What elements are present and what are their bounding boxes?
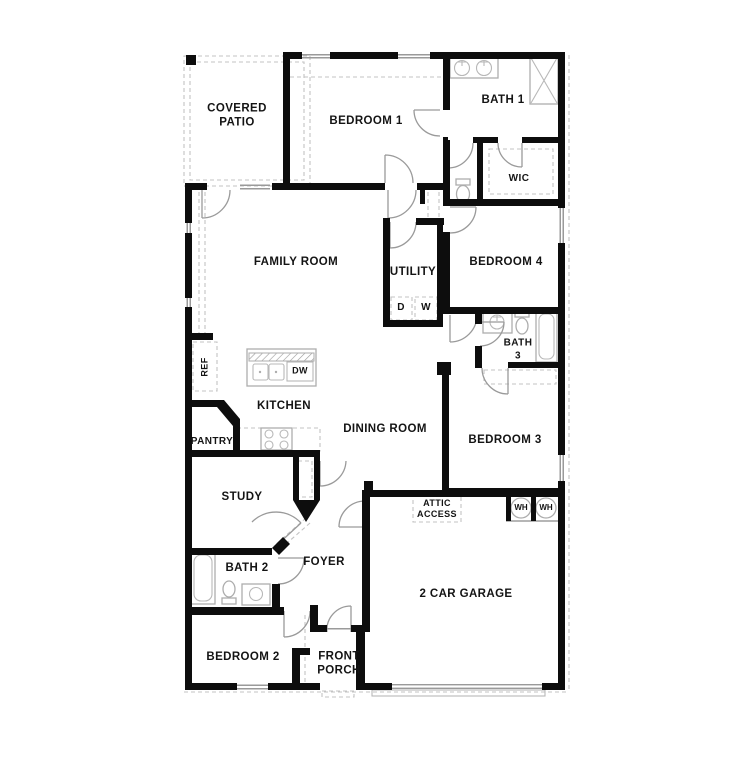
label-dishwasher: DW [292, 365, 308, 376]
label-bath-2: BATH 2 [225, 561, 268, 575]
label-study: STUDY [222, 490, 263, 504]
label-dining-room: DINING ROOM [343, 422, 427, 436]
label-pantry: PANTRY [191, 436, 233, 449]
bath1-vanity-icon [450, 57, 498, 78]
toilet-icon [456, 179, 470, 203]
floor-plan: COVEREDPATIO BEDROOM 1 BATH 1 WIC BEDROO… [0, 0, 753, 767]
label-refrigerator: REF [199, 357, 210, 376]
label-water-heater-right: WH [539, 503, 552, 513]
label-washer: W [421, 302, 431, 315]
label-attic-access: ATTICACCESS [417, 498, 457, 521]
label-bath-3: BATH3 [504, 338, 533, 363]
label-utility: UTILITY [390, 265, 436, 279]
label-covered-patio: COVEREDPATIO [207, 102, 267, 131]
label-family-room: FAMILY ROOM [254, 255, 338, 269]
label-bedroom-2: BEDROOM 2 [206, 650, 279, 664]
garage-door [372, 684, 545, 696]
label-dryer: D [397, 302, 405, 315]
label-bedroom-4: BEDROOM 4 [469, 255, 542, 269]
label-front-porch: FRONTPORCH [317, 650, 361, 679]
front-door-sidelight [327, 628, 351, 630]
label-bedroom-3: BEDROOM 3 [468, 433, 541, 447]
stove-icon [261, 428, 292, 450]
label-foyer: FOYER [303, 555, 345, 569]
label-kitchen: KITCHEN [257, 399, 311, 413]
label-water-heater-left: WH [514, 503, 527, 513]
label-wic: WIC [509, 173, 530, 186]
shower-icon [530, 57, 558, 104]
label-bath-1: BATH 1 [481, 93, 524, 107]
label-bedroom-1: BEDROOM 1 [329, 114, 402, 128]
label-garage: 2 CAR GARAGE [420, 587, 513, 601]
